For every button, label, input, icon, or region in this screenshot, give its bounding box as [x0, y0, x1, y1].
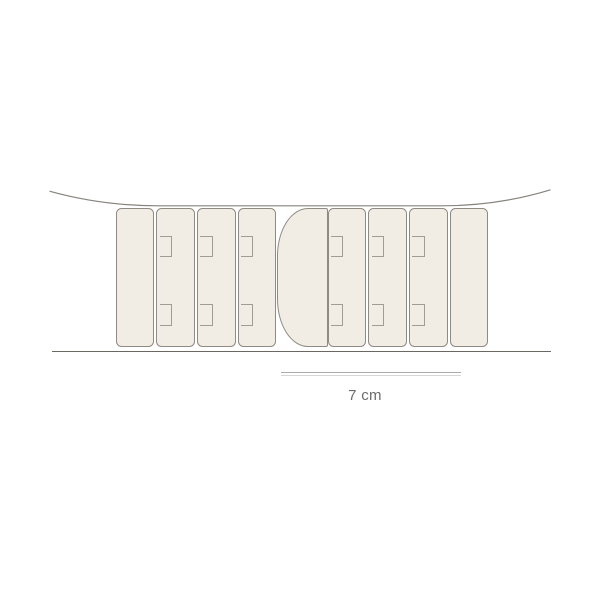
slat-8: [450, 208, 489, 347]
slat-1: [116, 208, 155, 347]
hook-notch: [331, 304, 344, 327]
diagram-canvas: 7 cm: [0, 0, 601, 601]
slat-5: [328, 208, 367, 347]
hook-notch: [200, 304, 213, 327]
scale-bar-bottom-line: [281, 375, 461, 376]
slat-3: [197, 208, 236, 347]
suspension-wire: [50, 190, 551, 206]
hook-notch: [412, 304, 425, 327]
hook-notch: [372, 304, 385, 327]
slat-7: [409, 208, 448, 347]
hook-notch: [160, 304, 173, 327]
slat-4: [238, 208, 277, 347]
slat-6: [368, 208, 407, 347]
slat-2: [156, 208, 195, 347]
hook-notch: [200, 236, 213, 257]
hook-notch: [372, 236, 385, 257]
scale-label: 7 cm: [281, 387, 449, 405]
end-connector: [277, 208, 328, 347]
hook-notch: [241, 304, 254, 327]
hook-notch: [160, 236, 173, 257]
scale-bar-top-line: [281, 372, 461, 373]
hook-notch: [412, 236, 425, 257]
base-line: [52, 351, 551, 353]
hook-notch: [241, 236, 254, 257]
hook-notch: [331, 236, 344, 257]
